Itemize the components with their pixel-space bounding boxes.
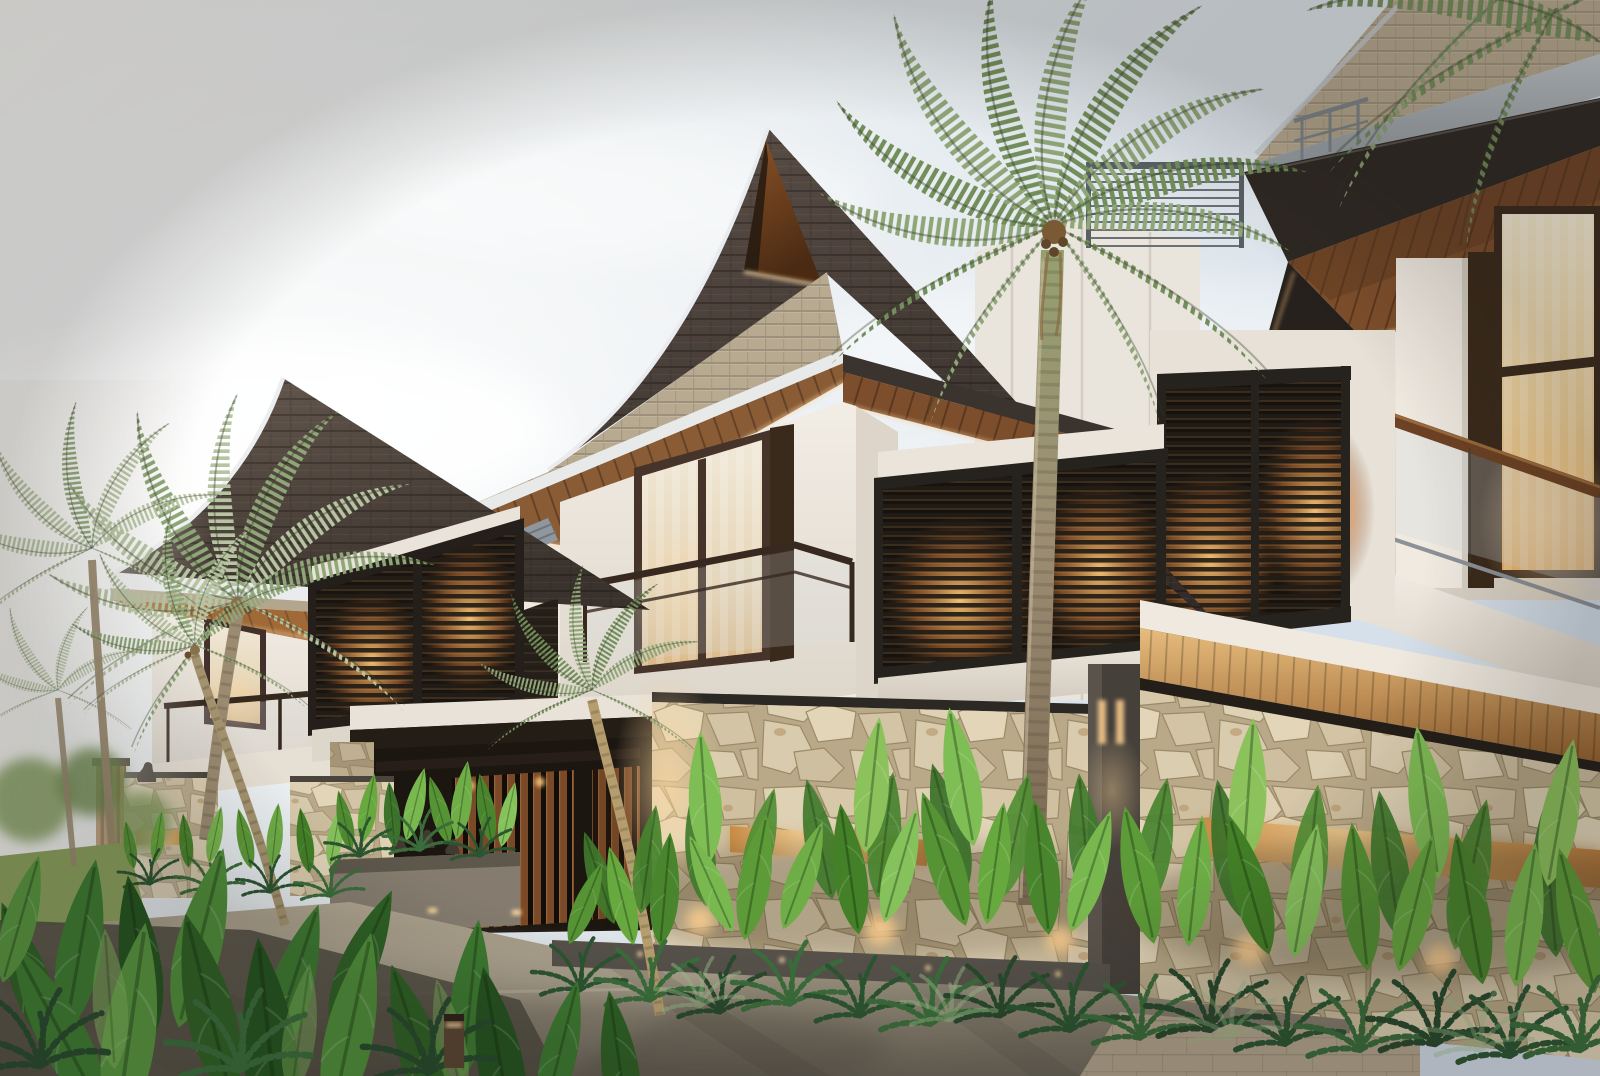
- villa-rendering: [0, 0, 1600, 1076]
- vignette: [0, 0, 1600, 1076]
